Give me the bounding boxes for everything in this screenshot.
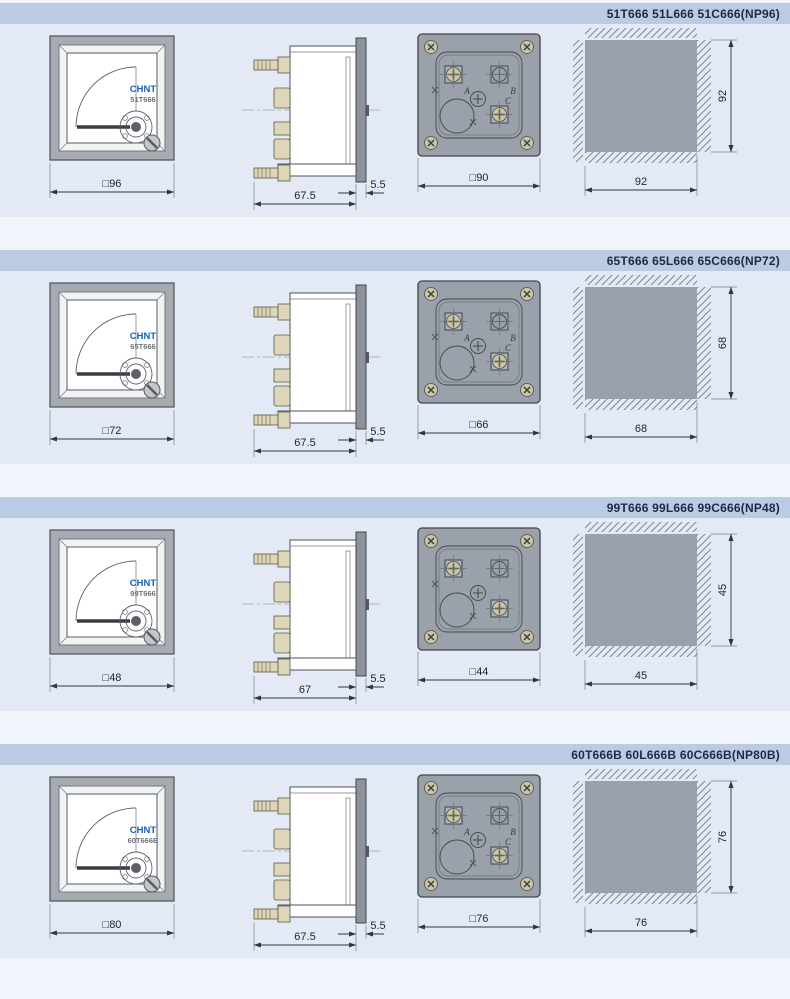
- pivot-hub: [131, 863, 141, 873]
- terminal-base: [278, 798, 290, 814]
- hatch-band-top: [585, 275, 697, 285]
- model-list: 60T666B 60L666B 60C666B(NP80B): [571, 748, 780, 762]
- front-width-dimension: □96: [50, 163, 174, 198]
- terminal-block: [274, 335, 290, 355]
- model-list: 65T666 65L666 65C666(NP72): [607, 254, 780, 268]
- meter-front: CHNT 99T666: [50, 530, 174, 654]
- rear-width-dimension: □66: [418, 405, 540, 439]
- rear-view-figure: A B: [405, 767, 565, 957]
- terminal-label: A: [463, 827, 470, 837]
- product-section-np48: 99T666 99L666 99C666(NP48): [0, 497, 790, 711]
- front-model-label: 60T666B: [128, 836, 159, 845]
- brand-logo: CHNT: [130, 84, 157, 95]
- pivot-hub: [131, 616, 141, 626]
- rear-view-drawing: A B: [405, 767, 565, 957]
- depth-dimensions: 5.5 67.5: [254, 179, 386, 210]
- terminal-block: [274, 386, 290, 406]
- front-width-value: □48: [103, 672, 122, 684]
- hatch-band-bottom: [585, 399, 697, 410]
- panel-clip: [366, 599, 369, 610]
- rear-width-dimension: □76: [418, 899, 540, 933]
- side-view-figure: 5.5 67: [220, 520, 405, 710]
- terminal-base: [278, 304, 290, 320]
- terminal-block: [274, 122, 290, 135]
- cutout-width-value: 45: [635, 670, 647, 682]
- bezel-depth-value: 5.5: [370, 426, 385, 438]
- terminal-block: [274, 139, 290, 159]
- meter-side: [242, 38, 382, 182]
- front-view-figure: CHNT 99T666 □48: [20, 520, 220, 710]
- terminal-block: [274, 633, 290, 653]
- cutout-height-value: 92: [717, 90, 729, 102]
- front-model-label: 65T666: [130, 342, 155, 351]
- rear-width-value: □90: [470, 172, 489, 184]
- terminal-label: A: [463, 333, 470, 343]
- front-view-figure: CHNT 51T666 □96: [20, 26, 220, 216]
- front-view-drawing: CHNT 60T666B □80: [20, 767, 220, 957]
- meter-rear: [418, 528, 540, 650]
- front-bezel: [356, 285, 366, 429]
- pivot-hub: [131, 369, 141, 379]
- front-bezel: [356, 779, 366, 923]
- terminal-label: C: [505, 837, 512, 847]
- case-depth-value: 67.5: [294, 931, 315, 943]
- front-width-dimension: □80: [50, 904, 174, 939]
- cutout-height-value: 68: [717, 337, 729, 349]
- panel-clip: [366, 352, 369, 363]
- section-header: 99T666 99L666 99C666(NP48): [0, 497, 790, 518]
- side-view-drawing: 5.5 67.5: [220, 273, 405, 463]
- side-view-figure: 5.5 67.5: [220, 273, 405, 463]
- section-drawings: CHNT 51T666 □96: [0, 24, 790, 217]
- case-depth-value: 67: [299, 684, 311, 696]
- cutout-height-dimension: 68: [711, 287, 737, 399]
- terminal-studs: [254, 551, 290, 675]
- bezel-depth-value: 5.5: [370, 673, 385, 685]
- terminal-studs: [254, 304, 290, 428]
- bezel-depth-value: 5.5: [370, 920, 385, 932]
- front-view-drawing: CHNT 65T666 □72: [20, 273, 220, 463]
- bezel-depth-value: 5.5: [370, 179, 385, 191]
- depth-dimensions: 5.5 67.5: [254, 920, 386, 951]
- cutout-height-dimension: 45: [711, 534, 737, 646]
- panel-cutout-drawing: 45 45: [565, 520, 770, 710]
- product-section-np80b: 60T666B 60L666B 60C666B(NP80B): [0, 744, 790, 958]
- terminal-block: [274, 880, 290, 900]
- panel-cutout-drawing: 92 92: [565, 26, 770, 216]
- front-bezel: [356, 38, 366, 182]
- cutout-square: [585, 40, 697, 152]
- rear-view-drawing: A B: [405, 273, 565, 463]
- section-header: 51T666 51L666 51C666(NP96): [0, 3, 790, 24]
- cutout-width-value: 68: [635, 423, 647, 435]
- rear-width-value: □76: [470, 913, 489, 925]
- side-view-drawing: 5.5 67.5: [220, 26, 405, 216]
- hatch-band-top: [585, 522, 697, 532]
- rear-width-dimension: □90: [418, 158, 540, 192]
- zero-adjuster: [144, 876, 160, 892]
- meter-rear: A B: [418, 281, 540, 403]
- side-view-figure: 5.5 67.5: [220, 26, 405, 216]
- hatch-band-right: [697, 781, 711, 893]
- hatch-band-bottom: [585, 646, 697, 657]
- terminal-base: [278, 906, 290, 922]
- front-width-value: □96: [103, 178, 122, 190]
- terminal-block: [274, 863, 290, 876]
- terminal-base: [278, 412, 290, 428]
- hatch-band-left: [573, 287, 583, 409]
- panel-cutout-figure: 68 68: [565, 273, 770, 463]
- meter-rear: A B: [418, 34, 540, 156]
- rear-view-figure: □44: [405, 520, 565, 710]
- case-depth-value: 67.5: [294, 190, 315, 202]
- depth-dimensions: 5.5 67.5: [254, 426, 386, 457]
- meter-front: CHNT 65T666: [50, 283, 174, 407]
- front-width-value: □80: [103, 919, 122, 931]
- cutout-height-value: 45: [717, 584, 729, 596]
- terminal-label: A: [463, 86, 470, 96]
- front-bezel: [356, 532, 366, 676]
- rear-view-drawing: A B: [405, 26, 565, 216]
- pivot-hub: [131, 122, 141, 132]
- brand-logo: CHNT: [130, 331, 157, 342]
- panel-cutout-drawing: 76 76: [565, 767, 770, 957]
- terminal-studs: [254, 57, 290, 181]
- side-view-drawing: 5.5 67.5: [220, 767, 405, 957]
- cutout-square: [585, 287, 697, 399]
- front-view-figure: CHNT 65T666 □72: [20, 273, 220, 463]
- product-section-np96: 51T666 51L666 51C666(NP96): [0, 3, 790, 217]
- depth-dimensions: 5.5 67: [254, 673, 386, 704]
- case-depth-value: 67.5: [294, 437, 315, 449]
- section-header: 65T666 65L666 65C666(NP72): [0, 250, 790, 271]
- terminal-label: C: [505, 96, 512, 106]
- hatch-band-left: [573, 40, 583, 162]
- terminal-label: B: [510, 827, 516, 837]
- hatch-band-right: [697, 534, 711, 646]
- meter-side: [242, 779, 382, 923]
- hatch-band-bottom: [585, 152, 697, 163]
- model-list: 99T666 99L666 99C666(NP48): [607, 501, 780, 515]
- front-width-dimension: □48: [50, 657, 174, 692]
- meter-front: CHNT 60T666B: [50, 777, 174, 901]
- hatch-band-left: [573, 781, 583, 903]
- front-view-drawing: CHNT 99T666 □48: [20, 520, 220, 710]
- meter-side: [242, 532, 382, 676]
- panel-cutout-figure: 76 76: [565, 767, 770, 957]
- panel-cutout-drawing: 68 68: [565, 273, 770, 463]
- terminal-studs: [254, 798, 290, 922]
- panel-clip: [366, 846, 369, 857]
- brand-logo: CHNT: [130, 578, 157, 589]
- hatch-band-left: [573, 534, 583, 656]
- section-drawings: CHNT 60T666B □80: [0, 765, 790, 958]
- rear-width-dimension: □44: [418, 652, 540, 686]
- hatch-band-right: [697, 40, 711, 152]
- side-view-figure: 5.5 67.5: [220, 767, 405, 957]
- cutout-square: [585, 781, 697, 893]
- cutout-height-dimension: 92: [711, 40, 737, 152]
- side-view-drawing: 5.5 67: [220, 520, 405, 710]
- zero-adjuster: [144, 382, 160, 398]
- terminal-block: [274, 616, 290, 629]
- model-list: 51T666 51L666 51C666(NP96): [607, 7, 780, 21]
- terminal-block: [274, 369, 290, 382]
- section-drawings: CHNT 65T666 □72: [0, 271, 790, 464]
- product-section-np72: 65T666 65L666 65C666(NP72): [0, 250, 790, 464]
- rear-view-drawing: □44: [405, 520, 565, 710]
- cutout-square: [585, 534, 697, 646]
- terminal-block: [274, 88, 290, 108]
- terminal-block: [274, 582, 290, 602]
- hatch-band-top: [585, 28, 697, 38]
- zero-adjuster: [144, 135, 160, 151]
- rear-width-value: □44: [470, 666, 489, 678]
- front-view-drawing: CHNT 51T666 □96: [20, 26, 220, 216]
- terminal-base: [278, 57, 290, 73]
- hatch-band-bottom: [585, 893, 697, 904]
- meter-rear: A B: [418, 775, 540, 897]
- panel-clip: [366, 105, 369, 116]
- panel-cutout-figure: 45 45: [565, 520, 770, 710]
- front-view-figure: CHNT 60T666B □80: [20, 767, 220, 957]
- rear-width-value: □66: [470, 419, 489, 431]
- front-width-dimension: □72: [50, 410, 174, 445]
- terminal-label: C: [505, 343, 512, 353]
- zero-adjuster: [144, 629, 160, 645]
- rear-view-figure: A B: [405, 273, 565, 463]
- terminal-block: [274, 829, 290, 849]
- section-header: 60T666B 60L666B 60C666B(NP80B): [0, 744, 790, 765]
- terminal-base: [278, 659, 290, 675]
- catalog-dimensions-page: 51T666 51L666 51C666(NP96): [0, 0, 790, 958]
- meter-front: CHNT 51T666: [50, 36, 174, 160]
- terminal-label: B: [510, 333, 516, 343]
- cutout-height-value: 76: [717, 831, 729, 843]
- cutout-width-value: 92: [635, 176, 647, 188]
- terminal-base: [278, 551, 290, 567]
- front-width-value: □72: [103, 425, 122, 437]
- front-model-label: 51T666: [130, 95, 155, 104]
- cutout-width-value: 76: [635, 917, 647, 929]
- cutout-height-dimension: 76: [711, 781, 737, 893]
- panel-cutout-figure: 92 92: [565, 26, 770, 216]
- front-model-label: 99T666: [130, 589, 155, 598]
- section-drawings: CHNT 99T666 □48: [0, 518, 790, 711]
- rear-view-figure: A B: [405, 26, 565, 216]
- hatch-band-top: [585, 769, 697, 779]
- brand-logo: CHNT: [130, 825, 157, 836]
- meter-side: [242, 285, 382, 429]
- terminal-base: [278, 165, 290, 181]
- hatch-band-right: [697, 287, 711, 399]
- terminal-label: B: [510, 86, 516, 96]
